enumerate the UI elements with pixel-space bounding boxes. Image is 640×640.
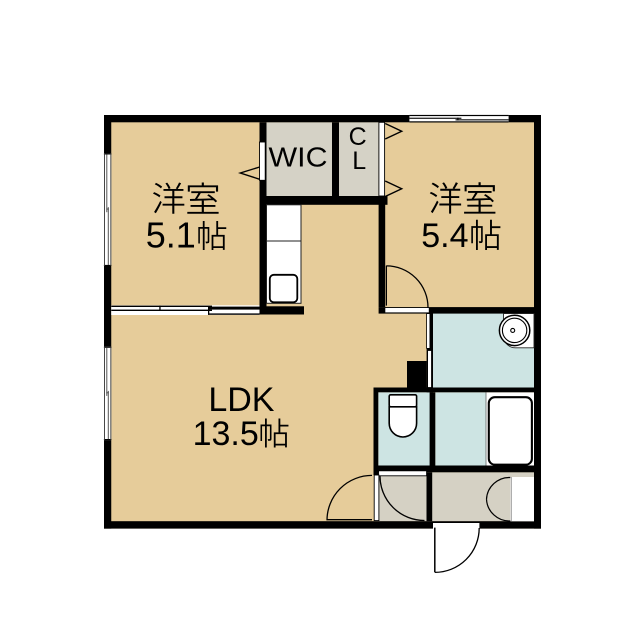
svg-text:5.4: 5.4 [421,217,468,255]
svg-text:5.1: 5.1 [146,214,196,255]
svg-text:L: L [352,147,366,175]
svg-text:LDK: LDK [208,381,274,419]
svg-text:13.5: 13.5 [193,415,259,453]
svg-text:WIC: WIC [269,142,328,173]
